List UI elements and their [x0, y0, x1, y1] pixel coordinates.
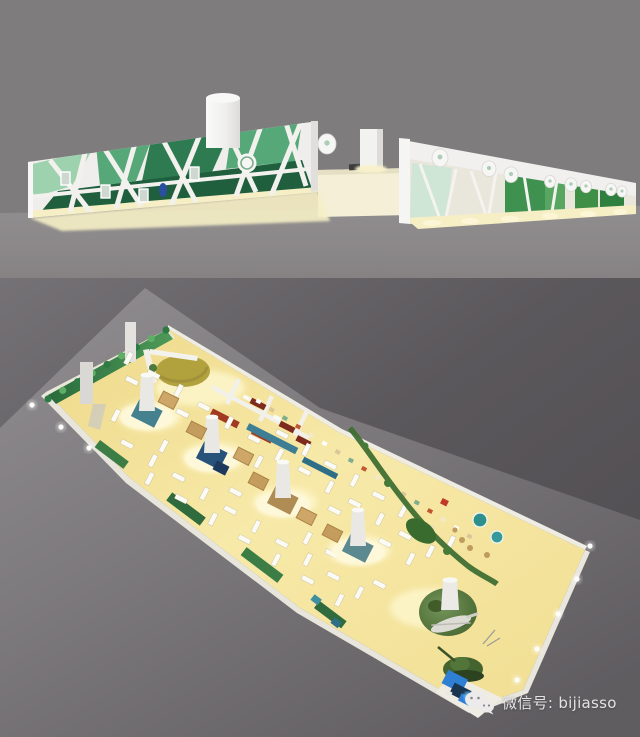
- station-cylinder-top: [206, 415, 219, 420]
- wall-logo-disc: [238, 154, 257, 173]
- perimeter-light: [587, 543, 592, 548]
- watermark-text: 微信号: bijiasso: [502, 692, 617, 713]
- disc-logo: [487, 166, 491, 170]
- perimeter-light: [534, 646, 539, 651]
- hedge-bush: [148, 335, 155, 342]
- disc-logo: [509, 172, 513, 176]
- station-cylinder-top: [141, 373, 154, 378]
- station-cylinder: [275, 462, 291, 498]
- station-cylinder-top: [277, 460, 290, 465]
- exhibition-aerial-render: [0, 278, 640, 737]
- disc-logo: [621, 190, 624, 193]
- exterior-scene: [0, 0, 640, 278]
- disc-logo: [609, 187, 612, 190]
- hedge-bush: [118, 352, 125, 359]
- umbrella: [473, 513, 487, 527]
- station-cylinder: [350, 510, 366, 546]
- hedge-bush: [103, 361, 110, 368]
- wechat-icon: [464, 690, 495, 715]
- hedge-bush: [44, 395, 51, 402]
- disc-logo: [569, 182, 573, 186]
- perimeter-light: [514, 677, 519, 682]
- garden-cylinder: [441, 580, 459, 610]
- cylinder-tower: [206, 93, 240, 148]
- hedge-bush: [162, 326, 169, 333]
- hedge-bush: [59, 387, 66, 394]
- disc-logo: [548, 179, 551, 182]
- disc-logo: [438, 155, 443, 160]
- blue-exhibit-figure: [159, 183, 167, 197]
- station-cylinder: [139, 375, 155, 411]
- station-cylinder-top: [352, 508, 365, 513]
- perimeter-light: [86, 445, 91, 450]
- render-composite: 微信号: bijiasso: [0, 0, 640, 737]
- aerial-scene: [0, 278, 640, 737]
- wechat-watermark: 微信号: bijiasso: [464, 690, 617, 715]
- perimeter-light: [29, 402, 34, 407]
- perimeter-light: [58, 424, 63, 429]
- perimeter-light: [555, 611, 560, 616]
- disc-logo: [584, 184, 587, 187]
- umbrella: [491, 531, 503, 543]
- station-cylinder: [204, 417, 220, 453]
- disc-logo: [324, 140, 329, 145]
- perimeter-light: [574, 576, 579, 581]
- exhibition-exterior-render: [0, 0, 640, 278]
